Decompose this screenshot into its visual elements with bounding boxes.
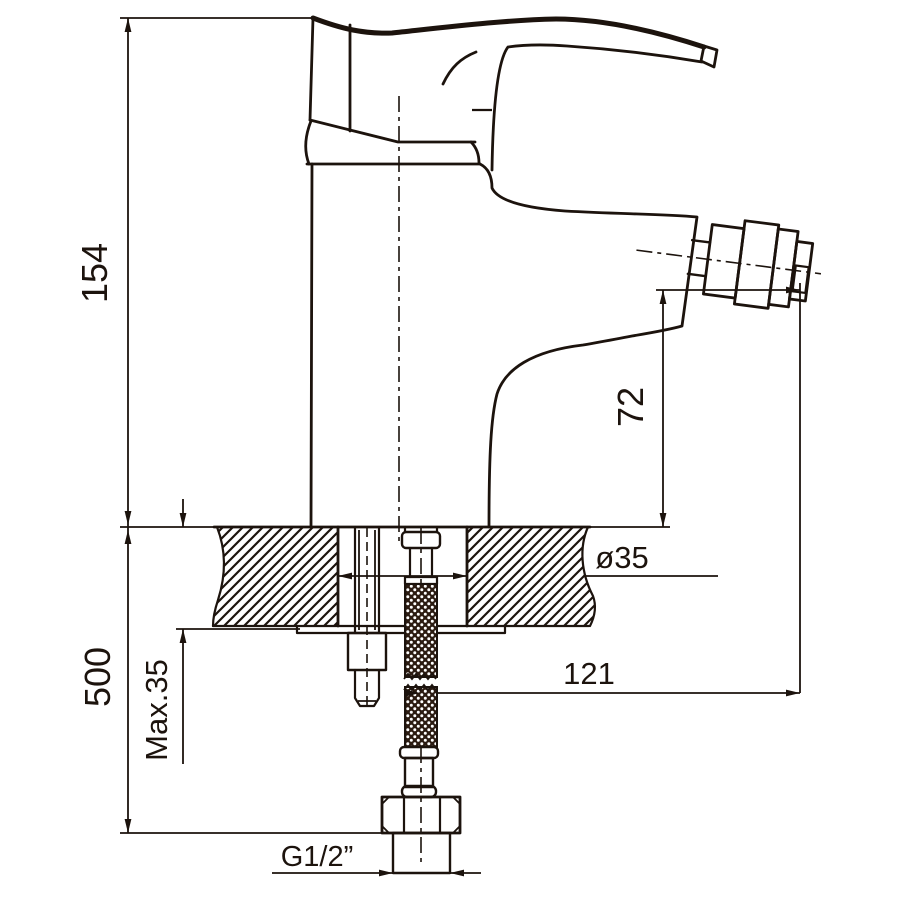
lever-top-contour bbox=[313, 18, 704, 47]
handle-base-left-edge bbox=[310, 18, 313, 120]
aerator-assembly bbox=[631, 207, 826, 314]
lever-handle bbox=[313, 18, 717, 170]
body-left-edge bbox=[311, 164, 312, 527]
supply-hose bbox=[382, 527, 460, 873]
label-outlet-reach: 121 bbox=[563, 656, 615, 691]
dimension-arrows bbox=[125, 18, 800, 876]
bidet-faucet-dimension-drawing: 154 500 Max.35 72 ø35 121 G1/2” bbox=[0, 0, 900, 900]
hex-nut-facets bbox=[404, 797, 440, 833]
dimension-lines bbox=[120, 18, 800, 873]
stud-nut bbox=[348, 633, 386, 670]
lever-neck-notch bbox=[443, 52, 476, 84]
label-thread-size: G1/2” bbox=[281, 841, 354, 873]
mounting-stud bbox=[348, 527, 386, 708]
label-outlet-height: 72 bbox=[610, 387, 651, 427]
faucet-body bbox=[306, 18, 697, 545]
label-overall-height: 154 bbox=[74, 243, 115, 303]
countertop-hatch-left bbox=[213, 527, 338, 626]
hose-end-tube bbox=[405, 758, 433, 787]
body-spout-contour bbox=[480, 164, 697, 527]
handle-base-bottom bbox=[310, 120, 475, 142]
hose-braid-lower bbox=[405, 687, 437, 747]
countertop-hatch-right bbox=[467, 527, 595, 626]
technical-drawing-page: 154 500 Max.35 72 ø35 121 G1/2” bbox=[0, 0, 900, 900]
lever-tip bbox=[701, 46, 717, 67]
lever-underside bbox=[492, 45, 702, 170]
label-hole-diameter: ø35 bbox=[595, 540, 648, 575]
label-max-thickness: Max.35 bbox=[139, 659, 174, 761]
label-hose-length: 500 bbox=[77, 647, 118, 707]
hose-braid-upper bbox=[405, 584, 437, 677]
aerator-band-2 bbox=[734, 221, 778, 309]
hose-ferrule bbox=[400, 747, 438, 758]
